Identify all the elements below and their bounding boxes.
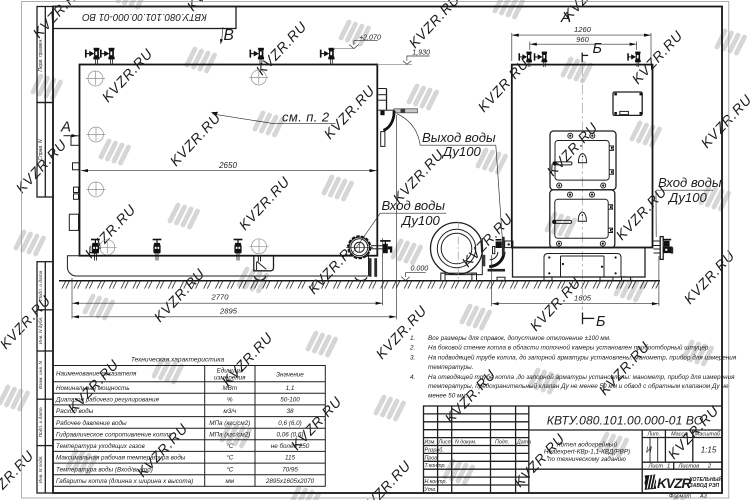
svg-text:см. п. 2: см. п. 2	[282, 109, 330, 124]
svg-text:Взам. инв. N: Взам. инв. N	[38, 361, 44, 389]
svg-text:КВТУ.080.101.00.000-01 ВО: КВТУ.080.101.00.000-01 ВО	[547, 413, 704, 427]
svg-text:2895х1605х2070: 2895х1605х2070	[265, 478, 315, 485]
svg-text:КОТЕЛЬНЫЙ: КОТЕЛЬНЫЙ	[690, 475, 723, 483]
svg-text:температуры.: температуры.	[428, 364, 473, 371]
svg-text:Лист: Лист	[648, 464, 664, 470]
svg-text:Ду100: Ду100	[667, 190, 707, 205]
svg-text:2895: 2895	[219, 306, 238, 315]
svg-text:Подп. и дата: Подп. и дата	[38, 270, 44, 300]
svg-text:В: В	[224, 27, 234, 44]
svg-text:На подводящей трубе котла, до: На подводящей трубе котла, до запорной а…	[428, 353, 737, 361]
svg-text:Вход воды: Вход воды	[382, 198, 446, 213]
svg-text:0,6 (6,0): 0,6 (6,0)	[278, 420, 301, 427]
svg-text:115: 115	[285, 455, 296, 462]
svg-text:Листов: Листов	[678, 464, 700, 470]
svg-text:38: 38	[286, 408, 294, 415]
svg-text:Подп.: Подп.	[495, 440, 509, 446]
svg-text:3.: 3.	[410, 354, 415, 361]
svg-text:2650: 2650	[218, 161, 237, 170]
svg-text:Максимальная рабочая температу: Максимальная рабочая температура воды	[56, 454, 186, 462]
svg-text:1:15: 1:15	[701, 446, 717, 455]
svg-text:Вход воды: Вход воды	[658, 175, 722, 190]
svg-text:1,1: 1,1	[286, 385, 295, 392]
svg-text:не более 250: не более 250	[271, 442, 310, 450]
svg-text:+2,070: +2,070	[359, 33, 381, 41]
svg-text:Б: Б	[593, 41, 602, 57]
svg-text:Лит.: Лит.	[646, 432, 660, 438]
svg-text:Справ. N: Справ. N	[38, 139, 44, 160]
svg-text:50-100: 50-100	[280, 397, 300, 404]
svg-text:Температура уходящих газов: Температура уходящих газов	[56, 442, 145, 450]
svg-text:0.000: 0.000	[411, 265, 429, 273]
svg-text:2770: 2770	[211, 292, 230, 301]
svg-text:Утв.: Утв.	[425, 487, 437, 493]
svg-text:°С: °С	[226, 442, 234, 450]
svg-text:Диапазон рабочего регулировани: Диапазон рабочего регулирования	[55, 396, 159, 404]
svg-text:Формат: Формат	[669, 494, 692, 500]
svg-text:менее 50 мм.: менее 50 мм.	[428, 393, 467, 400]
svg-text:Расход воды: Расход воды	[56, 407, 94, 415]
svg-text:по техническому заданию: по техническому заданию	[548, 455, 626, 463]
svg-text:Ду100: Ду100	[441, 144, 481, 159]
svg-text:мм: мм	[225, 478, 234, 485]
svg-text:А: А	[560, 9, 571, 26]
svg-text:И: И	[646, 445, 652, 454]
svg-text:4.: 4.	[410, 374, 415, 381]
svg-text:Масштаб: Масштаб	[695, 432, 721, 438]
svg-text:KVZR: KVZR	[657, 476, 691, 491]
svg-text:70/95: 70/95	[282, 466, 298, 473]
svg-text:1.: 1.	[410, 335, 415, 342]
svg-text:1,930: 1,930	[412, 49, 430, 57]
svg-text:МВт: МВт	[222, 385, 237, 392]
svg-text:Инв. N дубл.: Инв. N дубл.	[38, 317, 44, 345]
svg-text:1: 1	[667, 464, 670, 470]
svg-text:измерения: измерения	[214, 374, 246, 381]
svg-text:Единицы: Единицы	[217, 366, 244, 374]
svg-text:Н.контр.: Н.контр.	[425, 479, 447, 485]
svg-text:Подп. и дата: Подп. и дата	[38, 407, 44, 437]
svg-text:Масса: Масса	[671, 432, 687, 438]
svg-text:ЗАВОД РЭП: ЗАВОД РЭП	[690, 483, 720, 489]
svg-text:Значение: Значение	[276, 372, 304, 379]
svg-text:Б: Б	[596, 314, 605, 330]
svg-text:1260: 1260	[574, 25, 592, 34]
svg-text:Котел водогрейный: Котел водогрейный	[557, 440, 617, 448]
svg-text:Изм.: Изм.	[425, 440, 436, 446]
svg-text:960: 960	[576, 35, 589, 44]
svg-text:Температура воды (Вход/выход): Температура воды (Вход/выход)	[56, 465, 153, 473]
svg-text:КВТУ.080.101.00.000-01 ВО: КВТУ.080.101.00.000-01 ВО	[82, 11, 207, 22]
svg-text:На отводящей трубе котла ,до з: На отводящей трубе котла ,до запорной ар…	[428, 373, 735, 381]
svg-text:1605: 1605	[574, 293, 592, 302]
svg-text:На боковой стенке котла в обла: На боковой стенке котла в области топочн…	[428, 344, 709, 352]
svg-text:Габариты котла (длинна х ширин: Габариты котла (длинна х ширина х высота…	[56, 477, 193, 485]
svg-text:Heatexpert-КВр-1,1-КВД(РВР): Heatexpert-КВр-1,1-КВД(РВР)	[544, 449, 630, 456]
svg-text:2.: 2.	[409, 345, 415, 352]
svg-text:Перв. примен.: Перв. примен.	[38, 38, 44, 71]
svg-text:МПа (кгс/см2): МПа (кгс/см2)	[209, 432, 250, 439]
svg-text:Лист: Лист	[438, 440, 453, 446]
svg-text:Разраб.: Разраб.	[425, 447, 444, 453]
svg-text:м3/ч: м3/ч	[223, 408, 237, 415]
svg-text:Дата: Дата	[516, 440, 531, 446]
svg-text:Гидравлическое сопротивление к: Гидравлическое сопротивление котла	[56, 431, 172, 439]
svg-text:Номинальная мощность: Номинальная мощность	[56, 385, 130, 392]
svg-text:N докум.: N докум.	[455, 440, 476, 446]
svg-text:Рабочее давление воды: Рабочее давление воды	[56, 419, 127, 427]
svg-text:Техническая характеристика: Техническая характеристика	[131, 357, 225, 364]
svg-text:Инв. N подл.: Инв. N подл.	[38, 455, 44, 483]
svg-text:температуры, предохранительный: температуры, предохранительный клапан Ду…	[428, 382, 729, 390]
svg-text:0,06 (0,6): 0,06 (0,6)	[277, 432, 304, 439]
svg-text:Т.контр.: Т.контр.	[425, 463, 446, 469]
svg-text:°С: °С	[226, 454, 234, 462]
svg-text:°С: °С	[226, 465, 234, 473]
svg-text:А: А	[60, 119, 71, 136]
svg-text:Наименование показателя: Наименование показателя	[56, 371, 137, 378]
svg-text:Все размеры для справок, допус: Все размеры для справок, допустимое откл…	[428, 334, 611, 342]
svg-text:Ду100: Ду100	[400, 213, 440, 228]
svg-text:Выход воды: Выход воды	[422, 130, 496, 145]
svg-text:МПа (кгс/см2): МПа (кгс/см2)	[209, 420, 250, 427]
svg-text:%: %	[227, 397, 233, 404]
svg-text:Пров.: Пров.	[425, 455, 439, 461]
svg-text:А3: А3	[699, 494, 708, 500]
